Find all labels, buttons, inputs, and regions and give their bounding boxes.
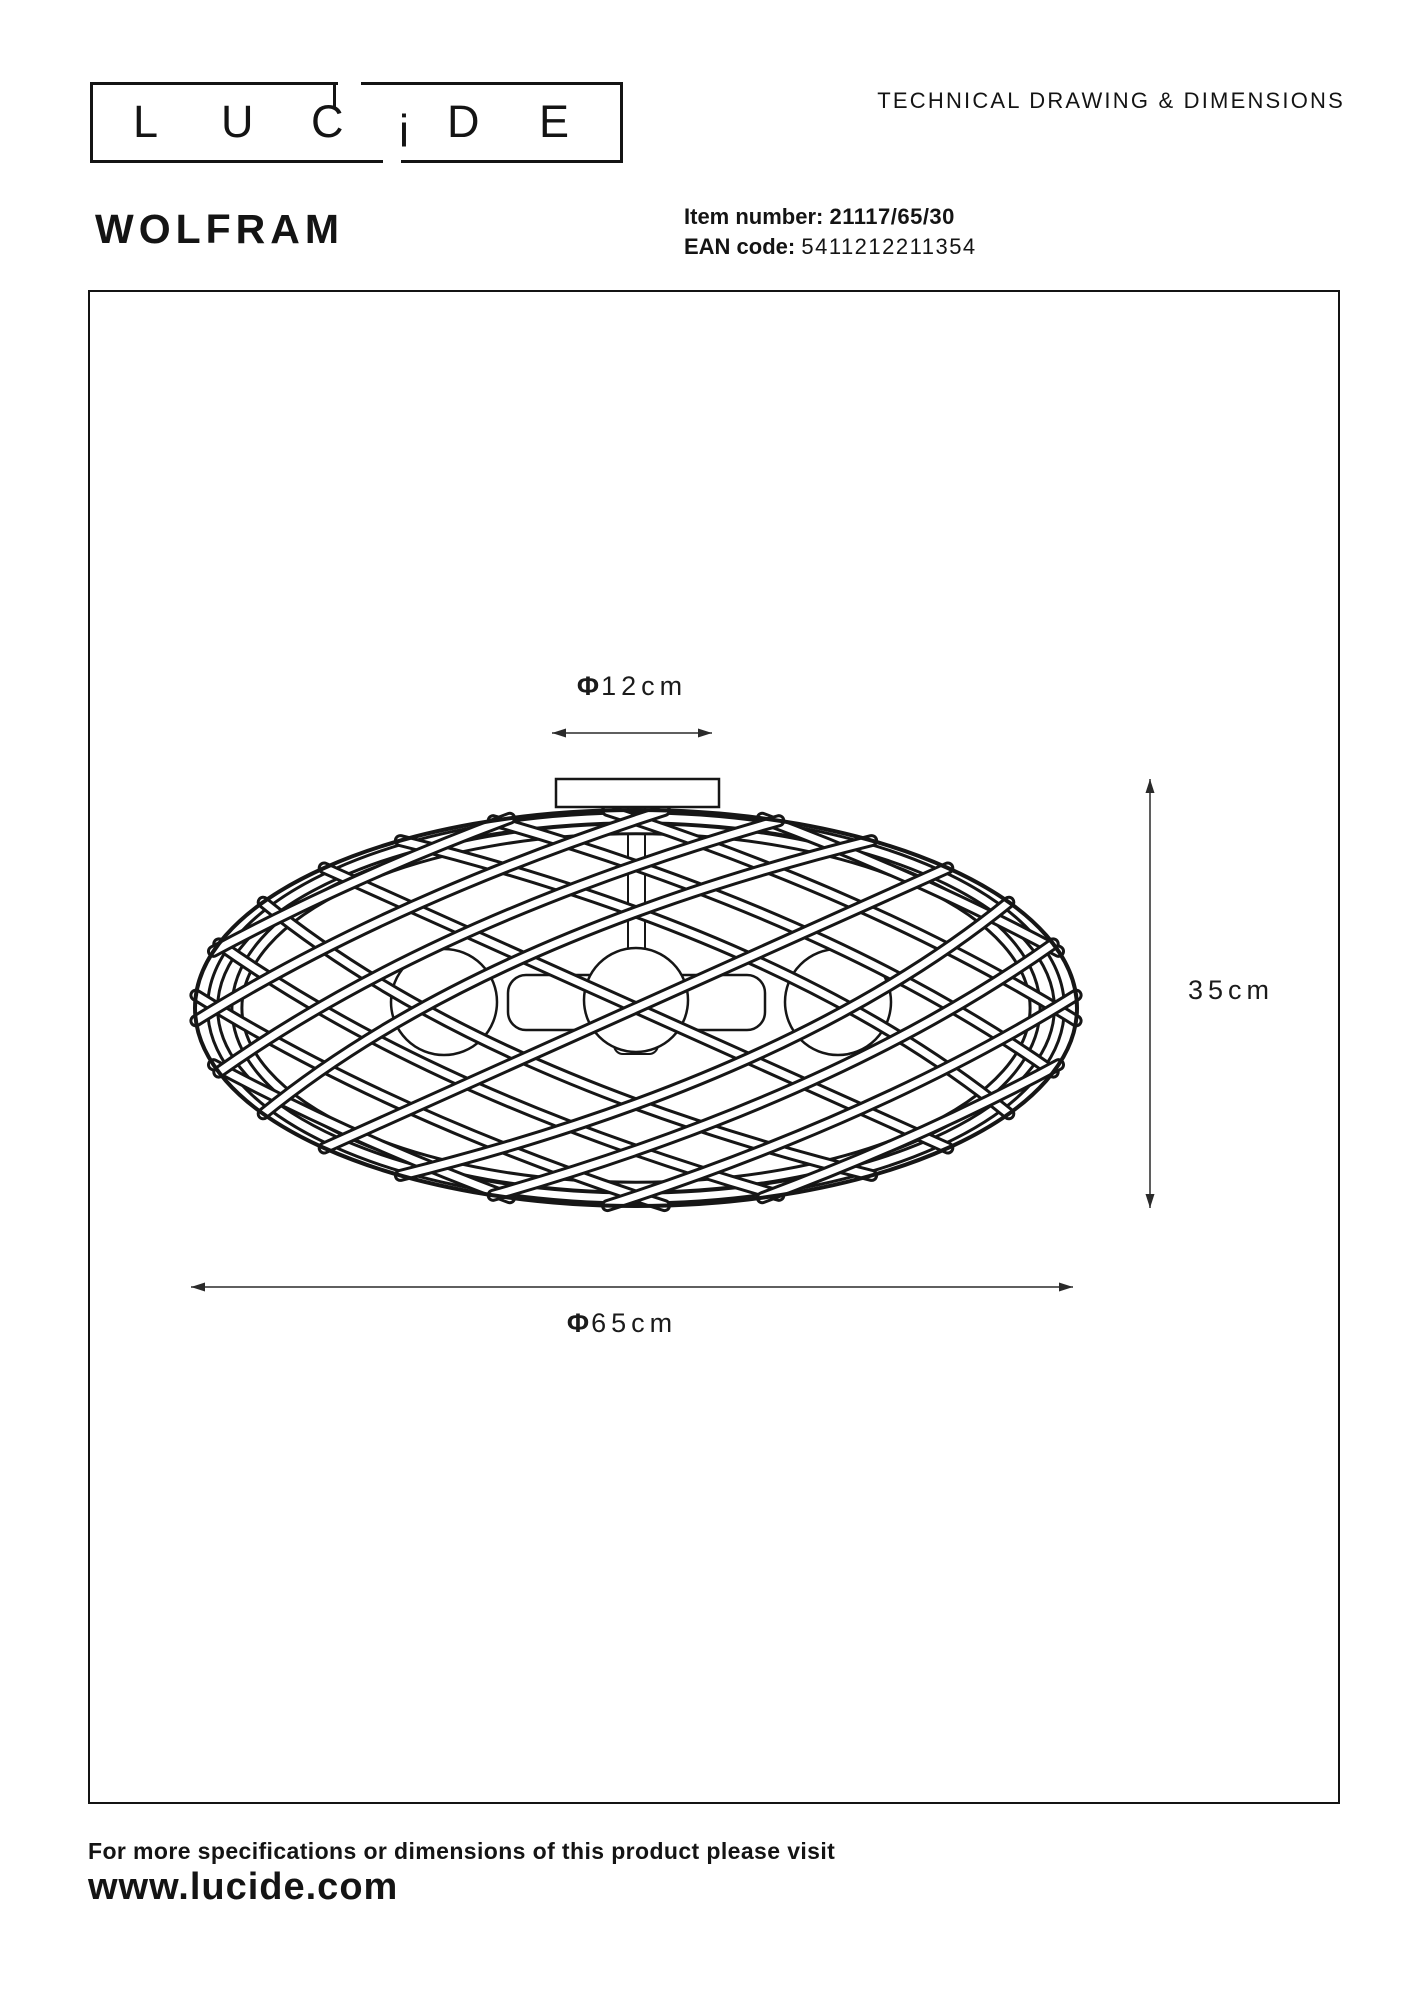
- dimension-label-top: Φ12cm: [502, 671, 762, 702]
- mounting-plate: [556, 779, 719, 807]
- logo-letter-i: i: [399, 105, 409, 157]
- dimension-label-height: 35cm: [1188, 975, 1274, 1006]
- product-name: WOLFRAM: [95, 206, 344, 253]
- phi-symbol: Φ: [577, 671, 601, 701]
- dim-line-plate-width-arrowhead: [698, 729, 712, 738]
- ean-code-value: 5411212211354: [801, 234, 976, 259]
- dim-line-diameter-arrowhead: [1059, 1283, 1073, 1292]
- logo-letter-u: U: [221, 95, 254, 147]
- dim-line-diameter-arrowhead: [191, 1283, 205, 1292]
- logo-border-gap-top: [338, 82, 361, 85]
- logo-letter-c: C: [311, 95, 344, 147]
- logo-letter-d: D: [447, 95, 480, 147]
- website-link[interactable]: www.lucide.com: [88, 1866, 398, 1909]
- logo-accent-mark: [333, 82, 336, 109]
- ean-code-row: EAN code: 5411212211354: [684, 234, 977, 260]
- dimension-label-width: Φ65cm: [492, 1308, 752, 1339]
- dimension-value-width: 65cm: [591, 1308, 677, 1338]
- dimension-value-height: 35cm: [1188, 975, 1274, 1005]
- footer-note: For more specifications or dimensions of…: [88, 1838, 835, 1865]
- lucide-logo: L U C i D E: [90, 82, 623, 163]
- item-number-row: Item number: 21117/65/30: [684, 204, 955, 230]
- dim-line-height-arrowhead: [1146, 779, 1155, 793]
- ean-code-label: EAN code:: [684, 234, 795, 259]
- logo-border-gap-bottom: [383, 160, 401, 163]
- spec-sheet-page: L U C i D E TECHNICAL DRAWING & DIMENSIO…: [0, 0, 1414, 2000]
- item-number-label: Item number:: [684, 204, 823, 229]
- item-number-value: 21117/65/30: [829, 204, 954, 229]
- drawing-frame: [88, 290, 1340, 1804]
- logo-letter-e: E: [539, 95, 569, 147]
- dim-line-height-arrowhead: [1146, 1194, 1155, 1208]
- dim-line-plate-width-arrowhead: [552, 729, 566, 738]
- dimension-value-top: 12cm: [601, 671, 687, 701]
- logo-letter-l: L: [133, 95, 158, 147]
- phi-symbol: Φ: [567, 1308, 591, 1338]
- lamp-technical-drawing: [88, 290, 1340, 1804]
- bulb-center: [584, 948, 688, 1052]
- document-title: TECHNICAL DRAWING & DIMENSIONS: [877, 88, 1345, 114]
